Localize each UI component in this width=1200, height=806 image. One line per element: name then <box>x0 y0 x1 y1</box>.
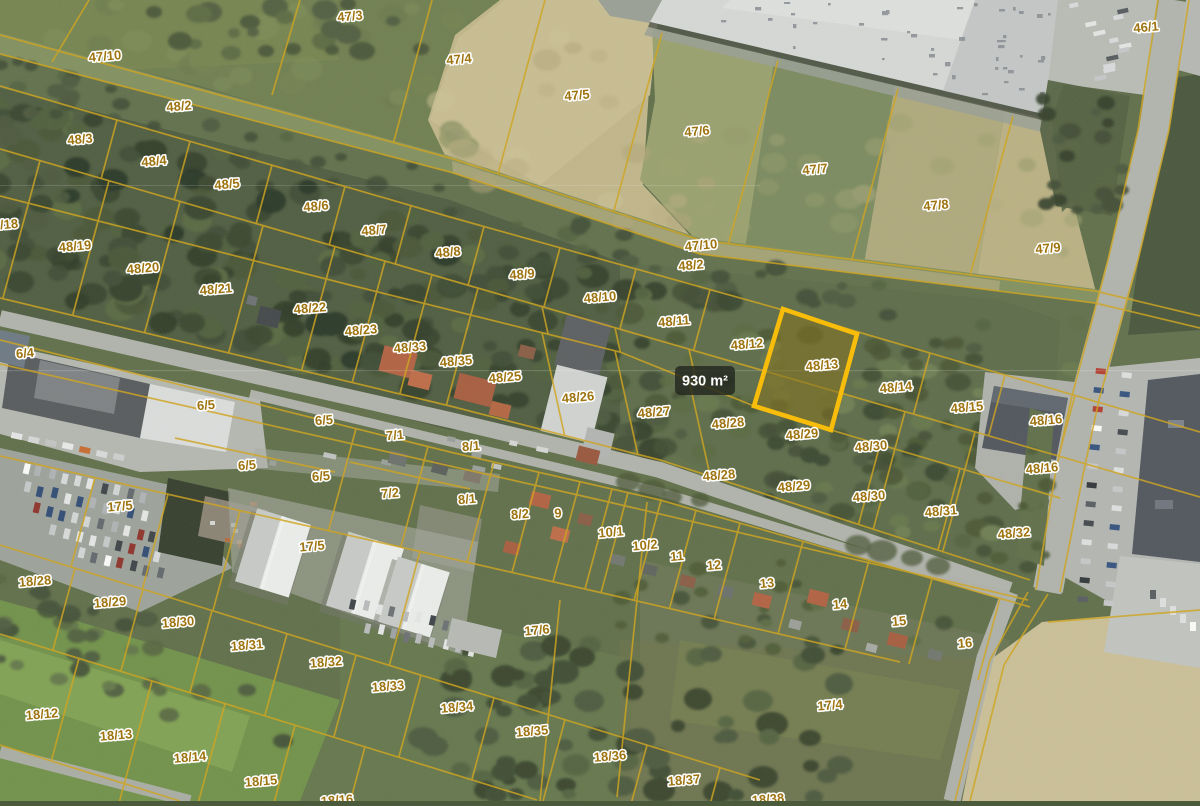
svg-text:48/35: 48/35 <box>439 352 473 370</box>
svg-text:18/14: 18/14 <box>173 748 207 766</box>
svg-text:47/10: 47/10 <box>88 47 122 65</box>
svg-text:48/28: 48/28 <box>711 414 745 432</box>
svg-text:17/5: 17/5 <box>299 537 326 554</box>
svg-text:6/5: 6/5 <box>314 412 333 429</box>
svg-text:18/37: 18/37 <box>667 771 701 789</box>
svg-text:18/36: 18/36 <box>593 747 627 765</box>
svg-text:48/2: 48/2 <box>166 97 193 114</box>
svg-text:46/1: 46/1 <box>1133 18 1160 35</box>
svg-text:48/30: 48/30 <box>852 487 886 505</box>
svg-text:48/11: 48/11 <box>657 312 690 330</box>
svg-text:47/10: 47/10 <box>684 236 718 254</box>
svg-text:48/4: 48/4 <box>141 152 168 169</box>
svg-text:48/23: 48/23 <box>344 321 378 339</box>
svg-text:8/1: 8/1 <box>461 438 480 455</box>
svg-text:48/26: 48/26 <box>561 388 595 406</box>
svg-text:47/7: 47/7 <box>802 160 829 177</box>
svg-text:8/1: 8/1 <box>457 491 476 508</box>
svg-text:18/28: 18/28 <box>18 572 52 590</box>
svg-text:48/10: 48/10 <box>583 288 617 306</box>
svg-text:47/3: 47/3 <box>337 7 364 24</box>
svg-text:47/9: 47/9 <box>1035 239 1062 256</box>
svg-text:48/5: 48/5 <box>214 175 241 192</box>
svg-text:48/21: 48/21 <box>199 280 233 298</box>
svg-text:18/13: 18/13 <box>99 726 133 744</box>
svg-text:18/34: 18/34 <box>440 698 474 716</box>
svg-text:48/7: 48/7 <box>361 221 388 238</box>
svg-text:48/16: 48/16 <box>1025 459 1059 477</box>
svg-text:11: 11 <box>669 548 684 564</box>
svg-text:48/9: 48/9 <box>509 265 536 282</box>
svg-text:18/32: 18/32 <box>309 653 343 671</box>
svg-text:48/20: 48/20 <box>126 259 160 277</box>
svg-text:18/16: 18/16 <box>320 791 354 801</box>
svg-text:48/22: 48/22 <box>293 299 327 317</box>
svg-text:47/8: 47/8 <box>923 196 950 213</box>
svg-text:48/29: 48/29 <box>777 477 811 495</box>
svg-text:48/6: 48/6 <box>303 197 330 214</box>
svg-text:48/16: 48/16 <box>1029 411 1063 429</box>
svg-text:48/8: 48/8 <box>435 243 462 260</box>
svg-text:14: 14 <box>832 596 848 612</box>
svg-text:930 m²: 930 m² <box>682 374 728 390</box>
svg-text:17/4: 17/4 <box>817 696 844 713</box>
svg-text:18/38: 18/38 <box>751 790 785 801</box>
svg-text:7/2: 7/2 <box>380 485 399 502</box>
svg-text:48/12: 48/12 <box>730 335 764 353</box>
svg-text:47/5: 47/5 <box>564 86 591 103</box>
svg-text:48/19: 48/19 <box>58 237 92 255</box>
svg-text:48/14: 48/14 <box>879 378 913 396</box>
svg-text:48/27: 48/27 <box>637 403 671 421</box>
svg-text:6/4: 6/4 <box>15 345 35 362</box>
svg-text:48/31: 48/31 <box>924 502 958 520</box>
svg-text:48/32: 48/32 <box>997 524 1031 542</box>
svg-text:48/13: 48/13 <box>805 356 839 374</box>
svg-text:10/2: 10/2 <box>632 536 659 553</box>
svg-text:48/30: 48/30 <box>854 437 888 455</box>
svg-text:/18: /18 <box>0 216 19 233</box>
svg-text:8/2: 8/2 <box>510 506 529 523</box>
svg-text:18/12: 18/12 <box>25 705 59 723</box>
svg-text:6/5: 6/5 <box>196 397 215 414</box>
svg-text:16: 16 <box>957 635 973 651</box>
svg-text:17/5: 17/5 <box>107 497 134 514</box>
svg-text:12: 12 <box>706 557 722 573</box>
svg-text:18/35: 18/35 <box>515 722 549 740</box>
svg-text:48/25: 48/25 <box>488 368 522 386</box>
svg-text:48/29: 48/29 <box>785 425 819 443</box>
svg-text:18/30: 18/30 <box>161 613 195 631</box>
svg-text:18/29: 18/29 <box>93 593 127 611</box>
svg-text:18/15: 18/15 <box>244 772 278 790</box>
svg-text:48/3: 48/3 <box>67 130 94 147</box>
svg-text:7/1: 7/1 <box>385 427 404 444</box>
svg-text:6/5: 6/5 <box>311 468 330 485</box>
svg-text:15: 15 <box>891 613 907 629</box>
svg-text:18/31: 18/31 <box>230 636 264 654</box>
svg-text:48/33: 48/33 <box>393 338 427 356</box>
svg-text:48/28: 48/28 <box>702 466 736 484</box>
svg-text:13: 13 <box>759 575 775 591</box>
svg-text:48/2: 48/2 <box>678 256 705 273</box>
svg-text:18/33: 18/33 <box>371 677 405 695</box>
svg-text:10/1: 10/1 <box>598 523 625 540</box>
svg-text:47/6: 47/6 <box>684 122 711 139</box>
svg-text:6/5: 6/5 <box>237 457 256 474</box>
svg-text:17/6: 17/6 <box>524 621 551 638</box>
svg-text:9: 9 <box>554 505 563 521</box>
svg-text:48/15: 48/15 <box>950 398 984 416</box>
svg-text:47/4: 47/4 <box>446 50 473 67</box>
